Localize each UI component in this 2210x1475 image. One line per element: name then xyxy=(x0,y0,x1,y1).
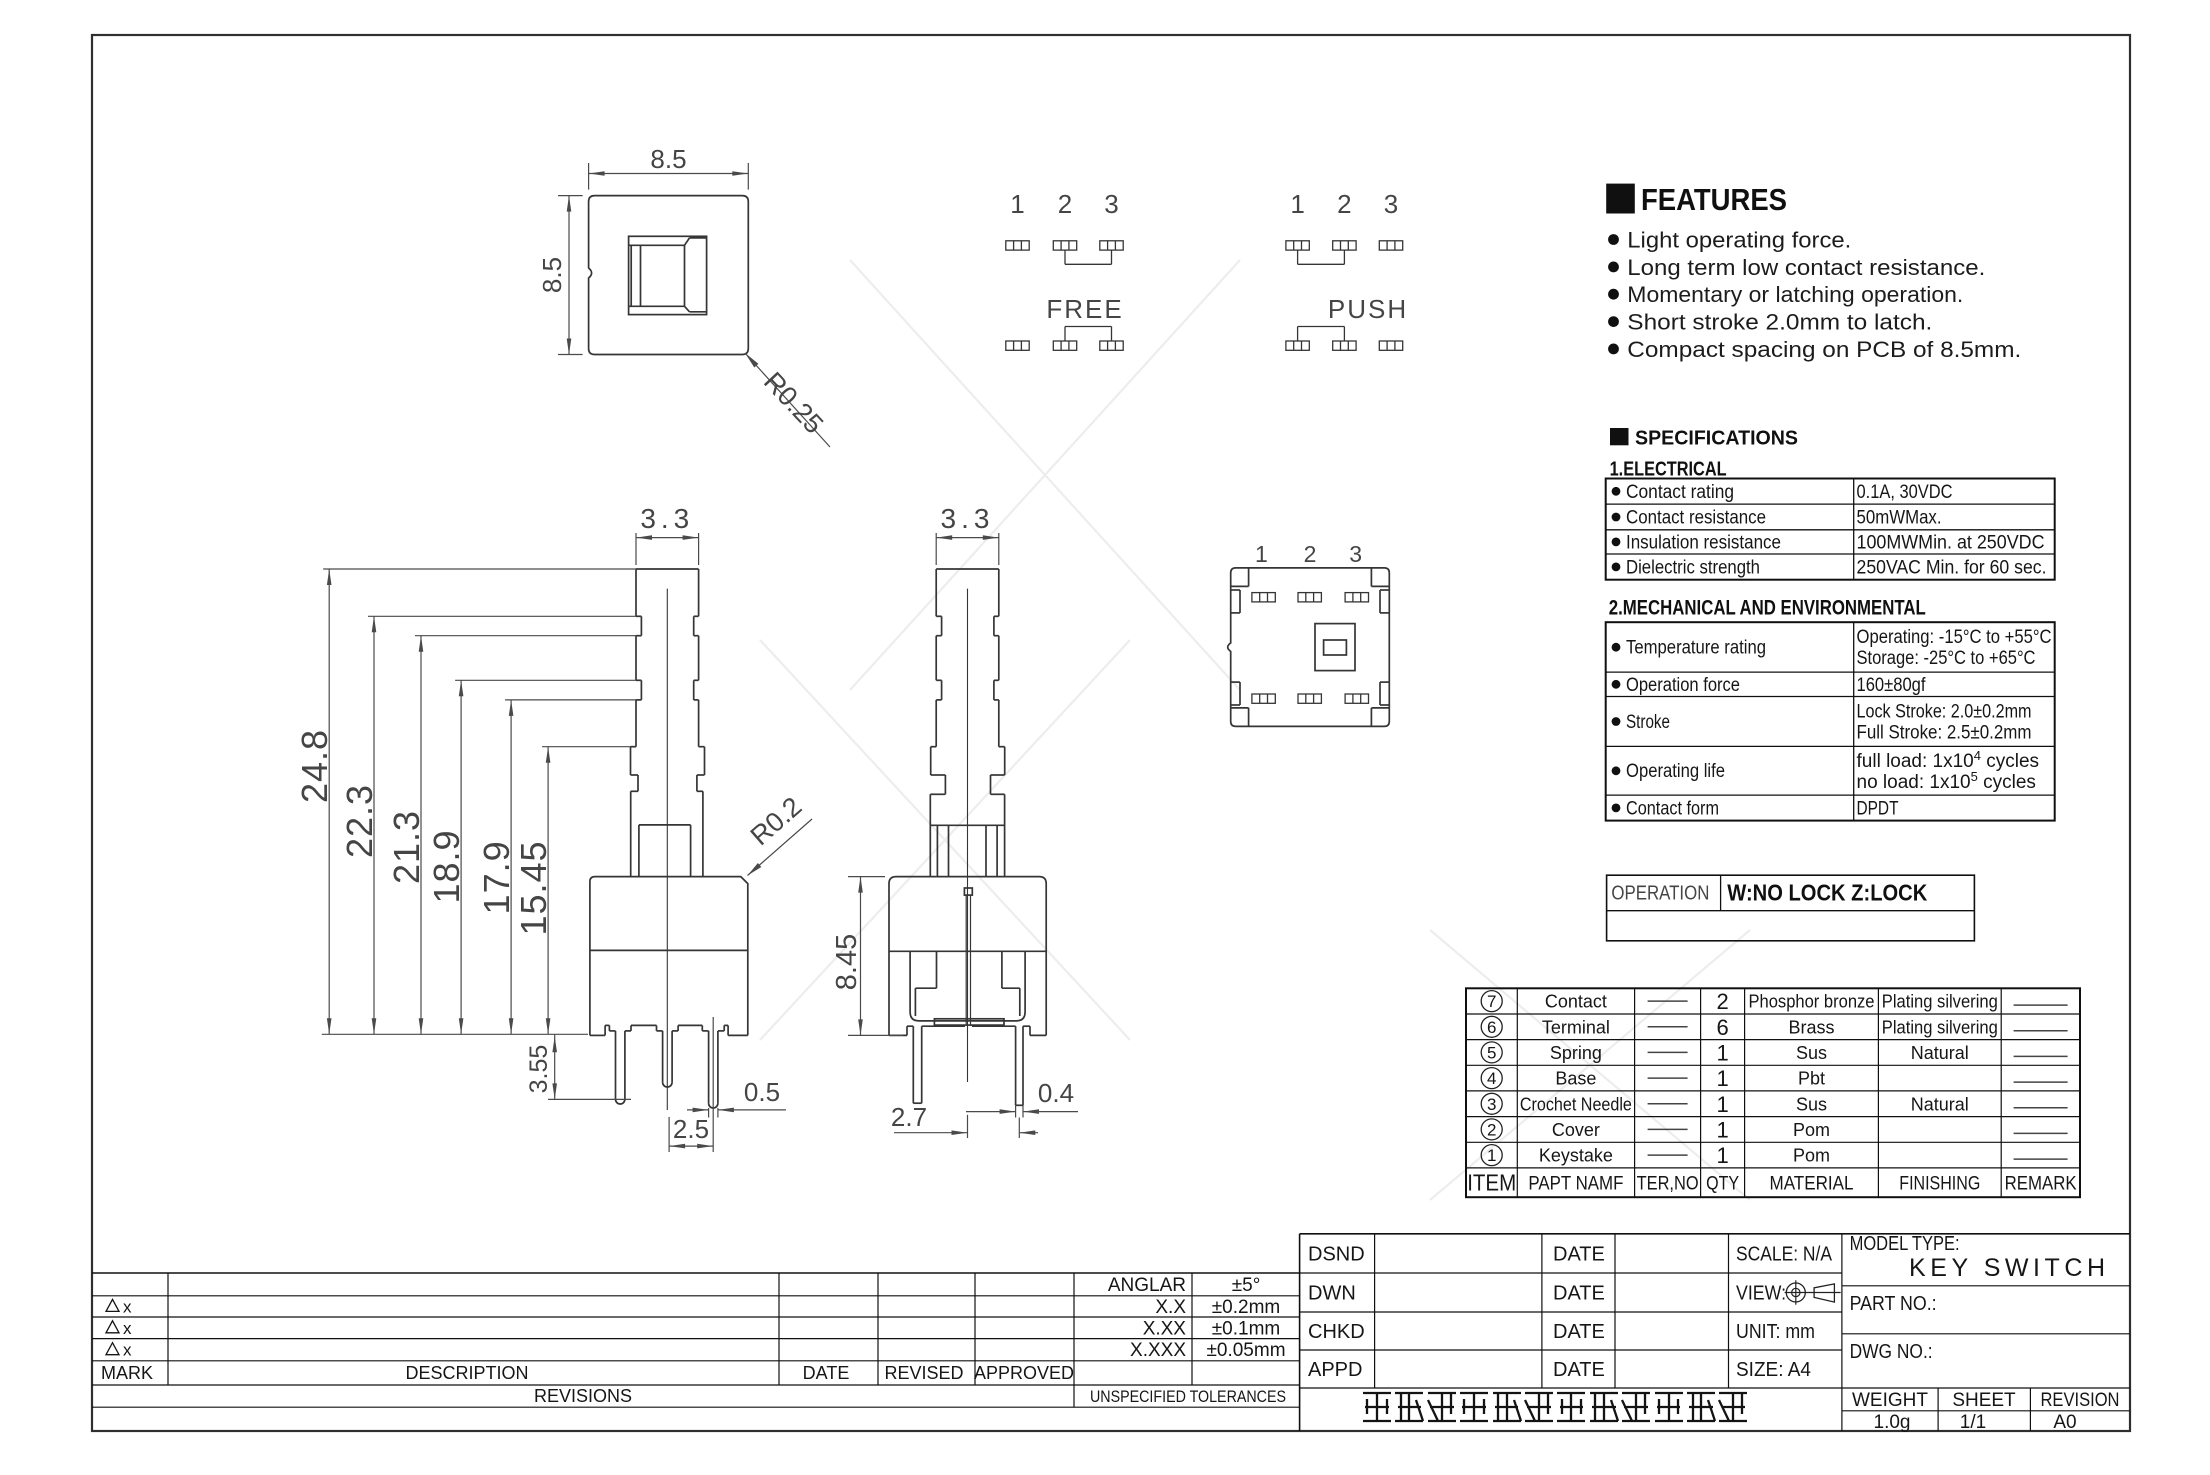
svg-text:Insulation resistance: Insulation resistance xyxy=(1626,532,1781,553)
svg-text:Long term low contact resistan: Long term low contact resistance. xyxy=(1627,255,1985,280)
svg-text:4: 4 xyxy=(1487,1069,1496,1088)
svg-text:Operating: -15°C to +55°C: Operating: -15°C to +55°C xyxy=(1857,627,2052,648)
svg-text:APPD: APPD xyxy=(1308,1359,1362,1381)
svg-text:5: 5 xyxy=(1487,1043,1496,1062)
svg-text:24.8: 24.8 xyxy=(294,729,335,803)
svg-text:VIEW:: VIEW: xyxy=(1736,1283,1786,1305)
svg-text:Sus: Sus xyxy=(1796,1043,1827,1063)
svg-text:15.45: 15.45 xyxy=(513,840,554,935)
svg-text:1: 1 xyxy=(1716,1117,1728,1142)
svg-text:Temperature rating: Temperature rating xyxy=(1626,638,1766,659)
svg-text:Operation force: Operation force xyxy=(1626,675,1740,696)
svg-text:DSND: DSND xyxy=(1308,1243,1365,1265)
svg-text:DWN: DWN xyxy=(1308,1283,1356,1305)
svg-text:7: 7 xyxy=(1487,992,1496,1011)
svg-text:TER,NO: TER,NO xyxy=(1637,1174,1699,1195)
svg-text:1: 1 xyxy=(1716,1066,1728,1091)
svg-text:X.XXX: X.XXX xyxy=(1130,1340,1186,1361)
svg-text:17.9: 17.9 xyxy=(476,840,517,914)
svg-text:FEATURES: FEATURES xyxy=(1641,182,1787,217)
svg-text:Pom: Pom xyxy=(1793,1120,1830,1140)
svg-text:DATE: DATE xyxy=(1553,1243,1605,1265)
svg-text:Momentary or latching operatio: Momentary or latching operation. xyxy=(1627,282,1963,307)
svg-text:Sus: Sus xyxy=(1796,1094,1827,1114)
svg-text:MARK: MARK xyxy=(101,1363,153,1383)
svg-text:Contact resistance: Contact resistance xyxy=(1626,508,1766,529)
svg-text:WEIGHT: WEIGHT xyxy=(1852,1390,1928,1411)
svg-text:Brass: Brass xyxy=(1788,1017,1834,1037)
svg-text:3: 3 xyxy=(1104,189,1118,219)
svg-text:1.0g: 1.0g xyxy=(1874,1412,1911,1433)
svg-text:1: 1 xyxy=(1255,541,1268,567)
svg-text:CHKD: CHKD xyxy=(1308,1321,1365,1343)
svg-text:ITEM: ITEM xyxy=(1467,1170,1516,1196)
svg-text:50mWMax.: 50mWMax. xyxy=(1857,508,1942,529)
svg-text:22.3: 22.3 xyxy=(339,784,380,858)
svg-text:Operating life: Operating life xyxy=(1626,761,1725,782)
svg-text:Light operating force.: Light operating force. xyxy=(1627,228,1851,253)
svg-text:2: 2 xyxy=(1304,541,1317,567)
svg-text:6: 6 xyxy=(1487,1018,1496,1037)
svg-text:SIZE: A4: SIZE: A4 xyxy=(1736,1359,1811,1381)
svg-text:2.MECHANICAL AND ENVIRONMENTAL: 2.MECHANICAL AND ENVIRONMENTAL xyxy=(1609,596,1926,619)
svg-text:DATE: DATE xyxy=(1553,1359,1605,1381)
svg-text:2: 2 xyxy=(1487,1120,1496,1139)
svg-text:3: 3 xyxy=(1487,1095,1496,1114)
svg-text:OPERATION: OPERATION xyxy=(1611,883,1709,905)
svg-text:Natural: Natural xyxy=(1911,1094,1969,1114)
svg-text:1: 1 xyxy=(1290,189,1304,219)
svg-text:2.5: 2.5 xyxy=(673,1114,709,1144)
svg-text:A0: A0 xyxy=(2053,1412,2076,1433)
svg-text:Spring: Spring xyxy=(1550,1043,1602,1063)
svg-text:1: 1 xyxy=(1716,1092,1728,1117)
svg-text:Compact spacing on PCB of 8.5: Compact spacing on PCB of 8.5mm. xyxy=(1627,337,2021,362)
svg-text:1: 1 xyxy=(1716,1143,1728,1168)
svg-text:1: 1 xyxy=(1010,189,1024,219)
svg-text:0.1A, 30VDC: 0.1A, 30VDC xyxy=(1857,482,1953,503)
svg-text:Terminal: Terminal xyxy=(1542,1017,1610,1037)
svg-text:Contact: Contact xyxy=(1545,992,1607,1012)
svg-text:±0.05mm: ±0.05mm xyxy=(1206,1340,1285,1361)
svg-text:REVISIONS: REVISIONS xyxy=(534,1386,632,1406)
svg-text:21.3: 21.3 xyxy=(386,810,427,884)
svg-text:2: 2 xyxy=(1058,189,1072,219)
svg-text:3.55: 3.55 xyxy=(525,1045,553,1094)
svg-text:3: 3 xyxy=(1349,541,1362,567)
svg-text:Contact form: Contact form xyxy=(1626,798,1719,819)
svg-text:PUSH: PUSH xyxy=(1328,294,1408,324)
svg-text:1: 1 xyxy=(1487,1146,1496,1165)
svg-text:REVISED: REVISED xyxy=(884,1363,963,1383)
svg-text:2.7: 2.7 xyxy=(891,1102,927,1132)
svg-text:SCALE: N/A: SCALE: N/A xyxy=(1736,1243,1833,1265)
svg-text:8.5: 8.5 xyxy=(537,257,567,293)
svg-text:PAPT NAMF: PAPT NAMF xyxy=(1528,1174,1623,1195)
svg-text:PART NO.:: PART NO.: xyxy=(1850,1293,1937,1315)
svg-text:x: x xyxy=(123,1297,132,1316)
svg-text:ANGLAR: ANGLAR xyxy=(1108,1275,1186,1296)
svg-text:Full Stroke: 2.5±0.2mm: Full Stroke: 2.5±0.2mm xyxy=(1857,723,2032,744)
svg-text:Short stroke 2.0mm to latch.: Short stroke 2.0mm to latch. xyxy=(1627,310,1932,335)
svg-text:REVISION: REVISION xyxy=(2041,1390,2120,1411)
svg-text:Cover: Cover xyxy=(1552,1120,1600,1140)
svg-text:x: x xyxy=(123,1319,132,1338)
svg-text:Pbt: Pbt xyxy=(1798,1069,1825,1089)
svg-text:KEY SWITCH: KEY SWITCH xyxy=(1909,1254,2105,1282)
svg-text:no load: 1x105 cycles: no load: 1x105 cycles xyxy=(1857,769,2036,793)
svg-text:DWG NO.:: DWG NO.: xyxy=(1850,1341,1933,1363)
svg-text:Contact rating: Contact rating xyxy=(1626,482,1734,503)
svg-text:Dielectric strength: Dielectric strength xyxy=(1626,557,1760,578)
svg-text:Keystake: Keystake xyxy=(1539,1146,1613,1166)
svg-text:FINISHING: FINISHING xyxy=(1899,1174,1980,1195)
svg-text:FREE: FREE xyxy=(1046,294,1123,324)
svg-text:2: 2 xyxy=(1337,189,1351,219)
svg-text:Phosphor bronze: Phosphor bronze xyxy=(1749,992,1875,1012)
svg-text:±0.2mm: ±0.2mm xyxy=(1212,1297,1281,1318)
svg-text:DATE: DATE xyxy=(1553,1321,1605,1343)
svg-text:±0.1mm: ±0.1mm xyxy=(1212,1318,1281,1339)
svg-text:0.5: 0.5 xyxy=(744,1077,780,1107)
svg-text:±5°: ±5° xyxy=(1232,1275,1261,1296)
svg-text:1/1: 1/1 xyxy=(1960,1412,1986,1433)
svg-text:Plating silvering: Plating silvering xyxy=(1882,1017,1998,1037)
svg-text:W:NO LOCK Z:LOCK: W:NO LOCK Z:LOCK xyxy=(1727,880,1927,906)
svg-text:SPECIFICATIONS: SPECIFICATIONS xyxy=(1635,428,1798,450)
svg-text:MODEL TYPE:: MODEL TYPE: xyxy=(1850,1233,1960,1255)
svg-text:1: 1 xyxy=(1716,1040,1728,1065)
svg-text:Stroke: Stroke xyxy=(1626,712,1670,733)
svg-text:DPDT: DPDT xyxy=(1857,798,1899,819)
svg-text:DATE: DATE xyxy=(803,1363,850,1383)
svg-text:X.X: X.X xyxy=(1155,1297,1186,1318)
svg-text:3: 3 xyxy=(1384,189,1398,219)
svg-text:0.4: 0.4 xyxy=(1038,1078,1074,1108)
svg-text:6: 6 xyxy=(1716,1015,1728,1040)
svg-text:8.5: 8.5 xyxy=(650,144,686,174)
svg-text:Storage: -25°C to +65°C: Storage: -25°C to +65°C xyxy=(1857,648,2036,669)
svg-text:REMARK: REMARK xyxy=(2005,1174,2077,1195)
svg-text:Pom: Pom xyxy=(1793,1146,1830,1166)
svg-text:8.45: 8.45 xyxy=(831,934,863,990)
svg-text:Natural: Natural xyxy=(1911,1043,1969,1063)
svg-text:Base: Base xyxy=(1555,1069,1596,1089)
svg-text:1.ELECTRICAL: 1.ELECTRICAL xyxy=(1610,458,1727,480)
svg-text:3.3: 3.3 xyxy=(640,503,694,534)
svg-text:100MWMin. at 250VDC: 100MWMin. at 250VDC xyxy=(1857,532,2045,553)
svg-text:full load: 1x104 cycles: full load: 1x104 cycles xyxy=(1857,748,2040,772)
svg-text:250VAC Min. for 60 sec.: 250VAC Min. for 60 sec. xyxy=(1857,557,2047,578)
svg-text:18.9: 18.9 xyxy=(426,829,467,903)
svg-text:UNSPECIFIED TOLERANCES: UNSPECIFIED TOLERANCES xyxy=(1090,1387,1286,1406)
svg-text:3.3: 3.3 xyxy=(941,503,995,534)
svg-text:Plating silvering: Plating silvering xyxy=(1882,992,1998,1012)
svg-text:APPROVED: APPROVED xyxy=(974,1363,1074,1383)
svg-text:x: x xyxy=(123,1341,132,1360)
svg-text:DATE: DATE xyxy=(1553,1283,1605,1305)
svg-text:QTY: QTY xyxy=(1706,1174,1739,1195)
svg-text:SHEET: SHEET xyxy=(1952,1390,2016,1411)
svg-text:DESCRIPTION: DESCRIPTION xyxy=(405,1363,528,1383)
svg-text:160±80gf: 160±80gf xyxy=(1857,675,1927,696)
svg-text:Crochet Needle: Crochet Needle xyxy=(1520,1094,1632,1114)
svg-text:MATERIAL: MATERIAL xyxy=(1770,1174,1854,1195)
svg-text:2: 2 xyxy=(1716,989,1728,1014)
svg-text:UNIT: mm: UNIT: mm xyxy=(1736,1321,1815,1343)
svg-text:Lock Stroke: 2.0±0.2mm: Lock Stroke: 2.0±0.2mm xyxy=(1857,702,2032,723)
svg-text:X.XX: X.XX xyxy=(1143,1318,1187,1339)
